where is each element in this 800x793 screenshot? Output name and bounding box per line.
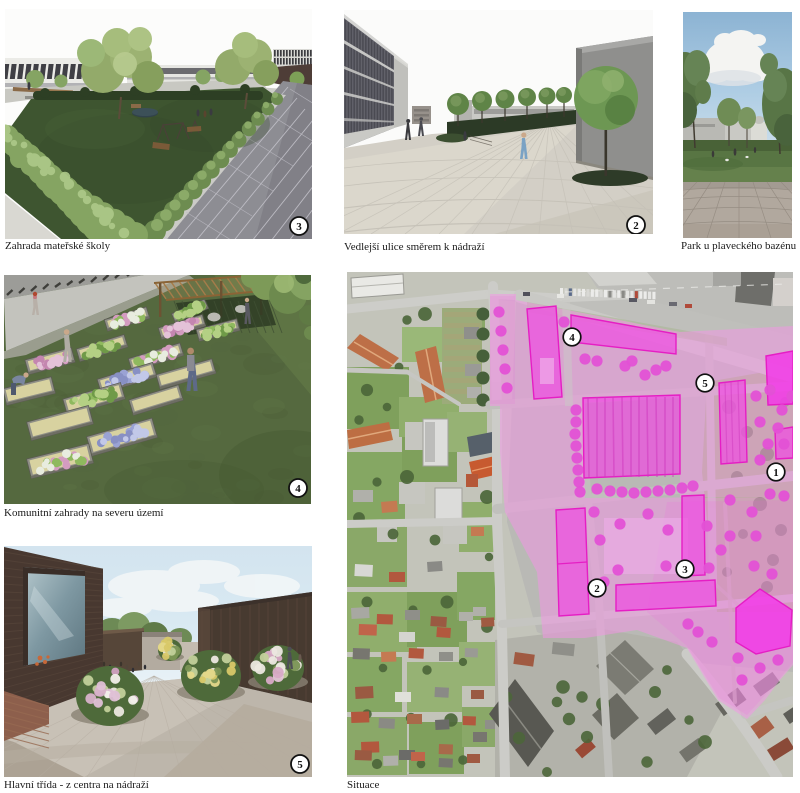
svg-text:3: 3 (296, 221, 302, 233)
svg-text:5: 5 (297, 759, 303, 771)
svg-text:3: 3 (682, 564, 688, 576)
svg-text:4: 4 (295, 483, 301, 495)
svg-text:1: 1 (773, 467, 779, 479)
svg-text:4: 4 (569, 332, 575, 344)
svg-text:5: 5 (702, 378, 708, 390)
svg-text:2: 2 (633, 220, 639, 232)
svg-text:2: 2 (594, 583, 600, 595)
